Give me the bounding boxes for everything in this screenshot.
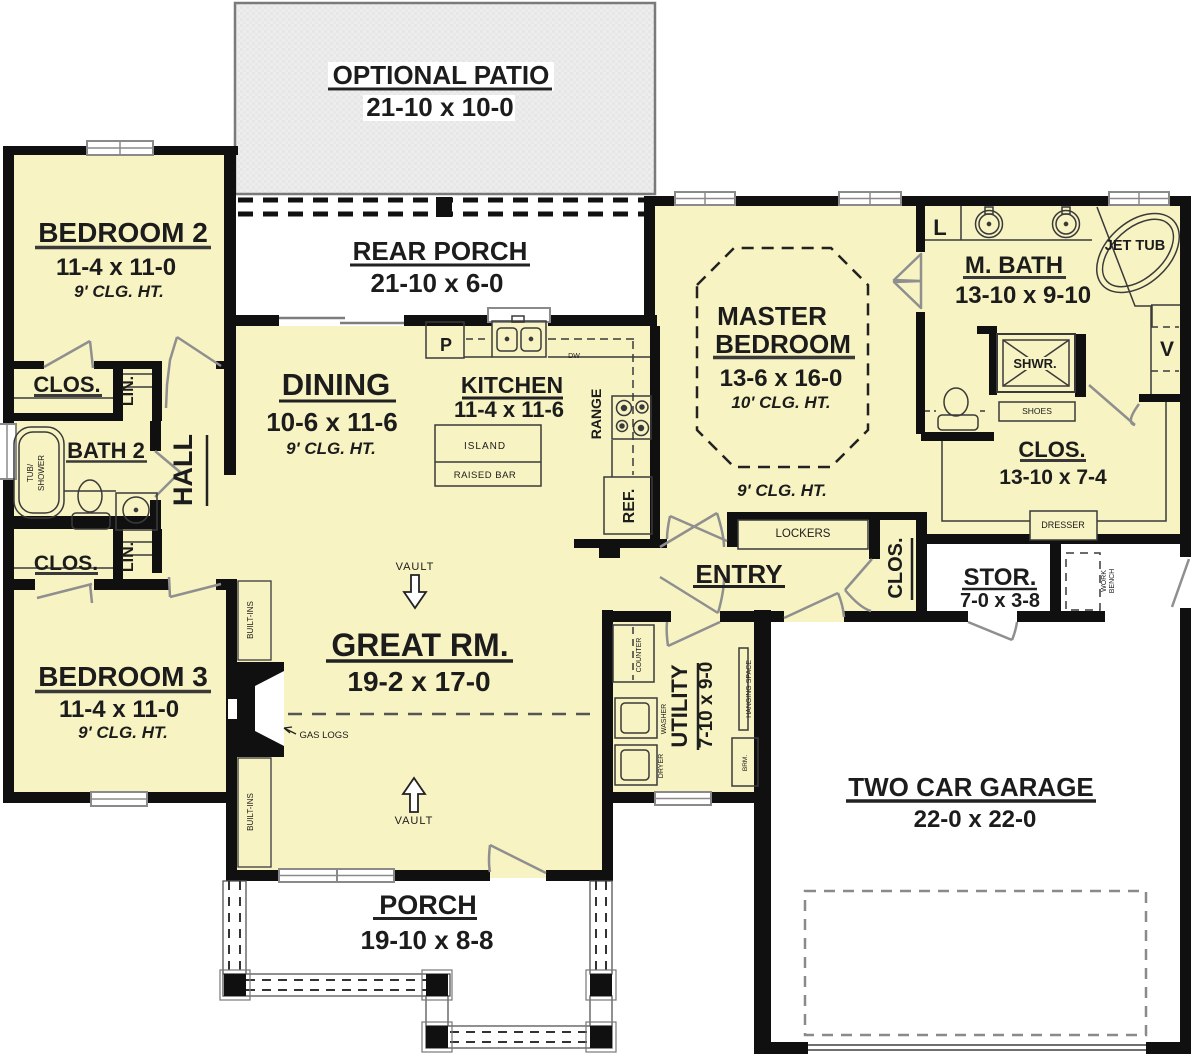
svg-text:BEDROOM 3: BEDROOM 3 [38, 661, 208, 692]
svg-text:GREAT RM.: GREAT RM. [331, 627, 508, 663]
svg-text:CLOS.: CLOS. [885, 537, 907, 598]
svg-text:COUNTER: COUNTER [636, 638, 643, 673]
svg-text:CLOS.: CLOS. [1018, 437, 1085, 462]
svg-text:VAULT: VAULT [396, 561, 435, 573]
svg-text:BRM.: BRM. [742, 755, 749, 771]
svg-text:BATH 2: BATH 2 [67, 438, 145, 463]
svg-text:DRYER: DRYER [658, 754, 665, 778]
svg-text:REF.: REF. [621, 489, 638, 524]
svg-text:TUB/: TUB/ [26, 463, 35, 482]
svg-text:BUILT-INS: BUILT-INS [246, 793, 255, 831]
svg-text:19-2 x 17-0: 19-2 x 17-0 [347, 666, 490, 697]
svg-text:UTILITY: UTILITY [667, 664, 692, 747]
svg-text:WORK: WORK [1101, 570, 1108, 592]
svg-text:SHWR.: SHWR. [1013, 356, 1056, 371]
svg-text:SHOWER: SHOWER [37, 455, 46, 491]
svg-text:DW: DW [568, 353, 580, 360]
svg-text:L: L [933, 215, 946, 240]
svg-text:DRESSER: DRESSER [1041, 520, 1085, 530]
svg-text:STOR.: STOR. [964, 564, 1037, 591]
svg-text:22-0 x 22-0: 22-0 x 22-0 [914, 806, 1037, 833]
svg-text:BEDROOM: BEDROOM [715, 329, 851, 359]
svg-text:RANGE: RANGE [588, 389, 604, 440]
svg-text:21-10 x 6-0: 21-10 x 6-0 [371, 268, 504, 298]
svg-text:9' CLG. HT.: 9' CLG. HT. [737, 481, 827, 500]
svg-text:JET TUB: JET TUB [1105, 238, 1165, 254]
svg-text:11-4 x 11-0: 11-4 x 11-0 [56, 254, 176, 281]
svg-text:9' CLG. HT.: 9' CLG. HT. [78, 723, 168, 742]
svg-text:11-4 x 11-0: 11-4 x 11-0 [59, 696, 179, 723]
svg-text:7-10 x 9-0: 7-10 x 9-0 [696, 662, 717, 749]
svg-text:BENCH: BENCH [1109, 569, 1116, 594]
svg-text:BUILT-INS: BUILT-INS [246, 601, 255, 639]
svg-text:BEDROOM 2: BEDROOM 2 [38, 217, 208, 248]
svg-text:9' CLG. HT.: 9' CLG. HT. [74, 282, 164, 301]
svg-text:CLOS.: CLOS. [34, 552, 98, 575]
svg-text:DINING: DINING [282, 367, 391, 402]
svg-text:13-6 x 16-0: 13-6 x 16-0 [720, 365, 843, 392]
svg-text:HALL: HALL [168, 434, 198, 506]
svg-text:11-4 x 11-6: 11-4 x 11-6 [454, 397, 564, 422]
svg-text:TWO CAR GARAGE: TWO CAR GARAGE [848, 772, 1094, 802]
svg-text:REAR PORCH: REAR PORCH [353, 236, 528, 266]
svg-text:13-10 x 7-4: 13-10 x 7-4 [999, 466, 1107, 489]
svg-text:ISLAND: ISLAND [464, 441, 506, 452]
svg-text:WASHER: WASHER [661, 704, 668, 734]
svg-text:P: P [440, 335, 452, 355]
svg-text:HANGING SPACE: HANGING SPACE [746, 660, 753, 718]
svg-text:SHOES: SHOES [1022, 406, 1052, 416]
svg-text:19-10 x 8-8: 19-10 x 8-8 [361, 925, 494, 955]
svg-text:7-0 x 3-8: 7-0 x 3-8 [960, 590, 1040, 612]
svg-text:LIN.: LIN. [120, 542, 137, 572]
svg-text:CLOS.: CLOS. [33, 372, 100, 397]
svg-text:9' CLG. HT.: 9' CLG. HT. [286, 439, 376, 458]
svg-text:21-10 x 10-0: 21-10 x 10-0 [366, 92, 513, 122]
svg-text:13-10 x 9-10: 13-10 x 9-10 [955, 282, 1091, 309]
svg-text:GAS LOGS: GAS LOGS [299, 730, 348, 741]
svg-text:10-6 x 11-6: 10-6 x 11-6 [266, 407, 398, 437]
svg-text:ENTRY: ENTRY [695, 559, 782, 589]
svg-text:RAISED BAR: RAISED BAR [454, 470, 517, 481]
svg-text:KITCHEN: KITCHEN [461, 372, 563, 398]
svg-text:V: V [1160, 338, 1174, 361]
svg-text:VAULT: VAULT [395, 815, 434, 827]
svg-text:LIN.: LIN. [120, 376, 137, 406]
svg-text:10' CLG. HT.: 10' CLG. HT. [731, 393, 830, 412]
svg-text:OPTIONAL PATIO: OPTIONAL PATIO [333, 60, 550, 90]
svg-text:PORCH: PORCH [379, 890, 477, 920]
svg-text:LOCKERS: LOCKERS [776, 528, 831, 540]
svg-text:MASTER: MASTER [717, 301, 827, 331]
svg-text:M. BATH: M. BATH [965, 252, 1063, 279]
